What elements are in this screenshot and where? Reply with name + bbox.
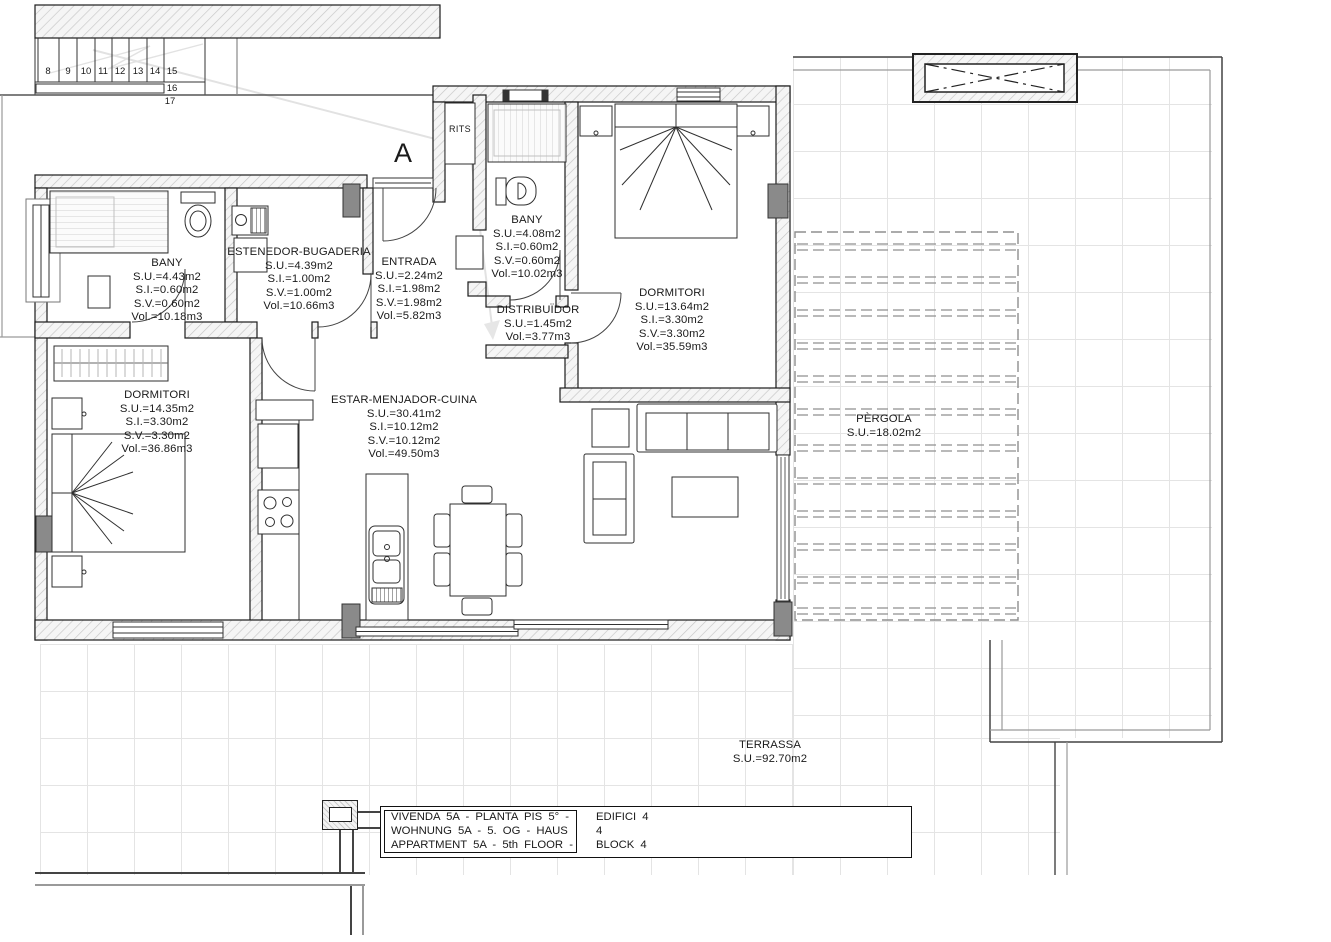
dining-table — [450, 504, 506, 596]
skylight-box — [913, 54, 1077, 102]
title-row: APPARTMENT 5A - 5th FLOOR - BLOCK 4 — [391, 839, 573, 851]
room-name: DORMITORI — [120, 389, 194, 403]
stair-number: 17 — [163, 96, 177, 107]
room-name: ESTAR-MENJADOR-CUINA — [331, 394, 477, 408]
side-table — [592, 409, 629, 447]
symbol-leader-line — [339, 830, 341, 872]
kitchen-counter — [256, 400, 313, 620]
terrace-border-line — [35, 884, 365, 886]
stair-number: 9 — [61, 66, 75, 77]
room-label-bany-left: BANY S.U.=4.43m2 S.I.=0.60m2 S.V.=0.60m2… — [131, 257, 202, 325]
radiator — [36, 516, 52, 552]
room-name: DISTRIBUÏDOR — [497, 304, 580, 318]
room-label-terrassa: TERRASSA S.U.=92.70m2 — [733, 739, 807, 766]
entry-shaft — [456, 236, 483, 269]
room-label-estar: ESTAR-MENJADOR-CUINA S.U.=30.41m2 S.I.=1… — [331, 394, 477, 462]
stair-number: 14 — [148, 66, 162, 77]
room-label-estenedor: ESTENEDOR-BUGADERIA S.U.=4.39m2 S.I.=1.0… — [227, 246, 370, 314]
title-row: WOHNUNG 5A - 5. OG - HAUS 4 — [391, 825, 568, 837]
floor-plan: 8 9 10 11 12 13 14 15 16 17 A RITS BANY … — [0, 0, 1331, 942]
terrace-border-line — [362, 886, 364, 935]
column — [343, 184, 360, 217]
glazing — [777, 455, 789, 601]
cooktop — [258, 490, 299, 534]
terrace-border-line — [35, 872, 365, 874]
nightstand — [52, 556, 86, 587]
stair-number: 16 — [165, 83, 179, 94]
sofa-three-seat — [637, 404, 777, 452]
shower-left — [50, 191, 168, 253]
symbol-leader-line — [358, 827, 380, 829]
sofa-two-seat — [584, 454, 634, 543]
sink-left — [88, 276, 110, 308]
wardrobe — [54, 346, 168, 381]
toilet-top — [496, 177, 536, 205]
stair-number: 10 — [79, 66, 93, 77]
room-label-pergola: PÈRGOLA S.U.=18.02m2 — [847, 413, 921, 440]
stair-number: 8 — [41, 66, 55, 77]
stair-number: 11 — [96, 66, 110, 77]
title-block: VIVENDA 5A - PLANTA PIS 5° - EDIFICI 4 W… — [380, 806, 912, 858]
section-marker-a: A — [394, 138, 412, 169]
title-row: VIVENDA 5A - PLANTA PIS 5° - EDIFICI 4 — [391, 811, 569, 823]
nightstand — [737, 106, 769, 136]
room-label-dormitori-left: DORMITORI S.U.=14.35m2 S.I.=3.30m2 S.V.=… — [120, 389, 194, 457]
terrace-border-line — [350, 886, 352, 935]
room-name: BANY — [491, 214, 562, 228]
symbol-leader-line — [352, 830, 354, 872]
room-label-entrada: ENTRADA S.U.=2.24m2 S.I.=1.98m2 S.V.=1.9… — [375, 256, 443, 324]
plan-linework — [0, 0, 1331, 942]
double-bed-right — [615, 104, 737, 238]
rits-shaft-label: RITS — [445, 124, 475, 134]
room-name: TERRASSA — [733, 739, 807, 753]
column-legend-symbol — [322, 800, 358, 830]
room-label-distribuidor: DISTRIBUÏDOR S.U.=1.45m2 Vol.=3.77m3 — [497, 304, 580, 345]
laundry-sink — [232, 206, 268, 235]
room-name: BANY — [131, 257, 202, 271]
radiator — [768, 184, 788, 218]
kitchen-island — [366, 474, 408, 620]
room-name: ENTRADA — [375, 256, 443, 270]
door-dormitori-left — [262, 338, 315, 391]
stair-number: 15 — [165, 66, 179, 77]
toilet-left — [181, 192, 215, 237]
stair-number: 13 — [131, 66, 145, 77]
stair-number: 12 — [113, 66, 127, 77]
nightstand — [52, 398, 86, 429]
room-name: DORMITORI — [635, 287, 709, 301]
room-label-bany-top: BANY S.U.=4.08m2 S.I.=0.60m2 S.V.=0.60m2… — [491, 214, 562, 282]
shower-top — [488, 104, 566, 162]
symbol-leader-line — [358, 811, 380, 813]
room-label-dormitori-right: DORMITORI S.U.=13.64m2 S.I.=3.30m2 S.V.=… — [635, 287, 709, 355]
room-name: ESTENEDOR-BUGADERIA — [227, 246, 370, 260]
nightstand — [580, 106, 612, 136]
column — [774, 602, 792, 636]
door-entrada — [383, 188, 436, 241]
coffee-table — [672, 477, 738, 517]
room-name: PÈRGOLA — [847, 413, 921, 427]
